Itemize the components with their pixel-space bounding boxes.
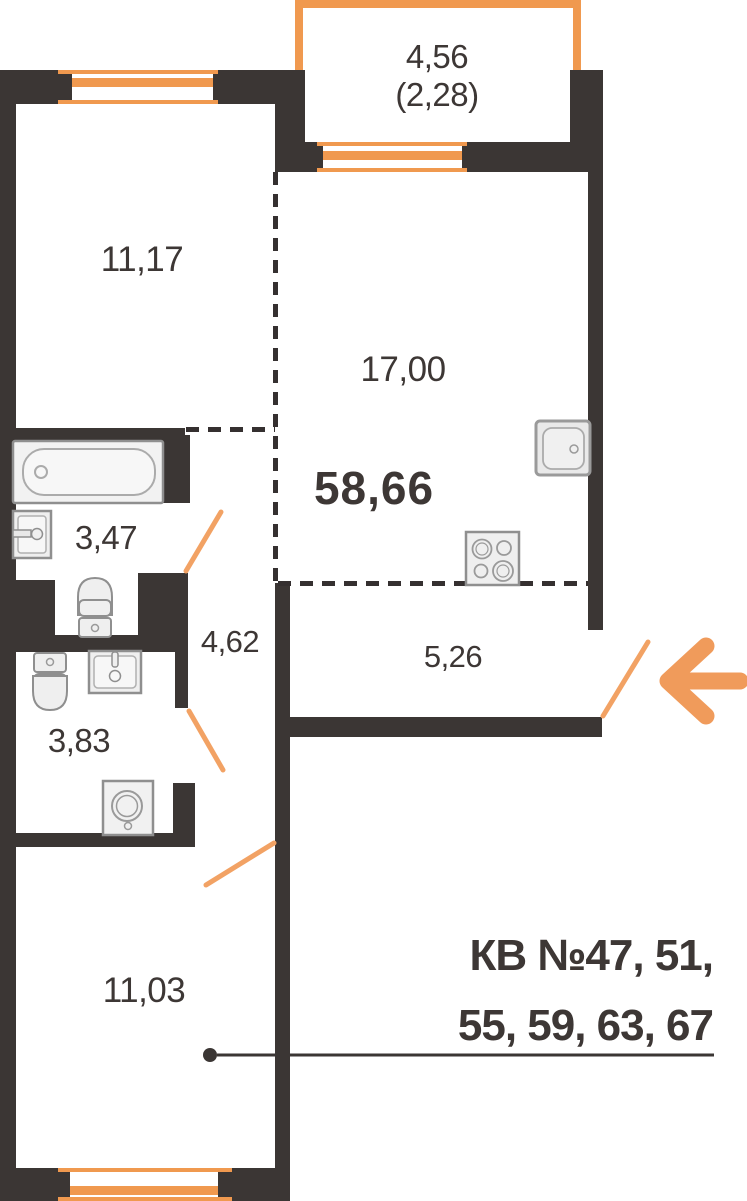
balcony-reduced-area-label: (2,28) (395, 76, 478, 114)
door-bathroom (186, 512, 221, 571)
bedroom-bottom-area-label: 11,03 (103, 971, 186, 1011)
entrance-arrow-icon (668, 646, 740, 716)
balcony-area-label: 4,56 (406, 38, 468, 76)
washbasin-wc-icon (89, 651, 141, 693)
toilet-icon (78, 578, 112, 637)
bedroom-top-area-label: 11,17 (101, 240, 184, 280)
floor-plan: 4,56 (2,28) 11,17 17,00 58,66 3,47 4,62 … (0, 0, 747, 1201)
stove-icon (466, 532, 519, 585)
total-area-label: 58,66 (314, 461, 434, 515)
corridor-area-label: 4,62 (201, 624, 259, 660)
washbasin-icon (13, 511, 51, 558)
kitchen-living-area-label: 17,00 (360, 350, 445, 390)
bathroom-area-label: 3,47 (75, 519, 137, 557)
wc-area-label: 3,83 (48, 722, 110, 760)
hallway-area-label: 5,26 (424, 639, 482, 675)
door-entrance (603, 642, 648, 716)
apartment-numbers-line2: 55, 59, 63, 67 (458, 991, 713, 1061)
apartment-numbers-line1: КВ №47, 51, (458, 921, 713, 991)
bathtub-icon (13, 441, 163, 503)
washing-machine-icon (103, 781, 153, 835)
toilet-wc-icon (33, 653, 67, 710)
kitchen-sink-icon (536, 421, 590, 475)
door-wc (189, 711, 223, 770)
apartment-numbers-label: КВ №47, 51, 55, 59, 63, 67 (458, 921, 713, 1061)
door-bedroom-bottom (206, 843, 274, 885)
